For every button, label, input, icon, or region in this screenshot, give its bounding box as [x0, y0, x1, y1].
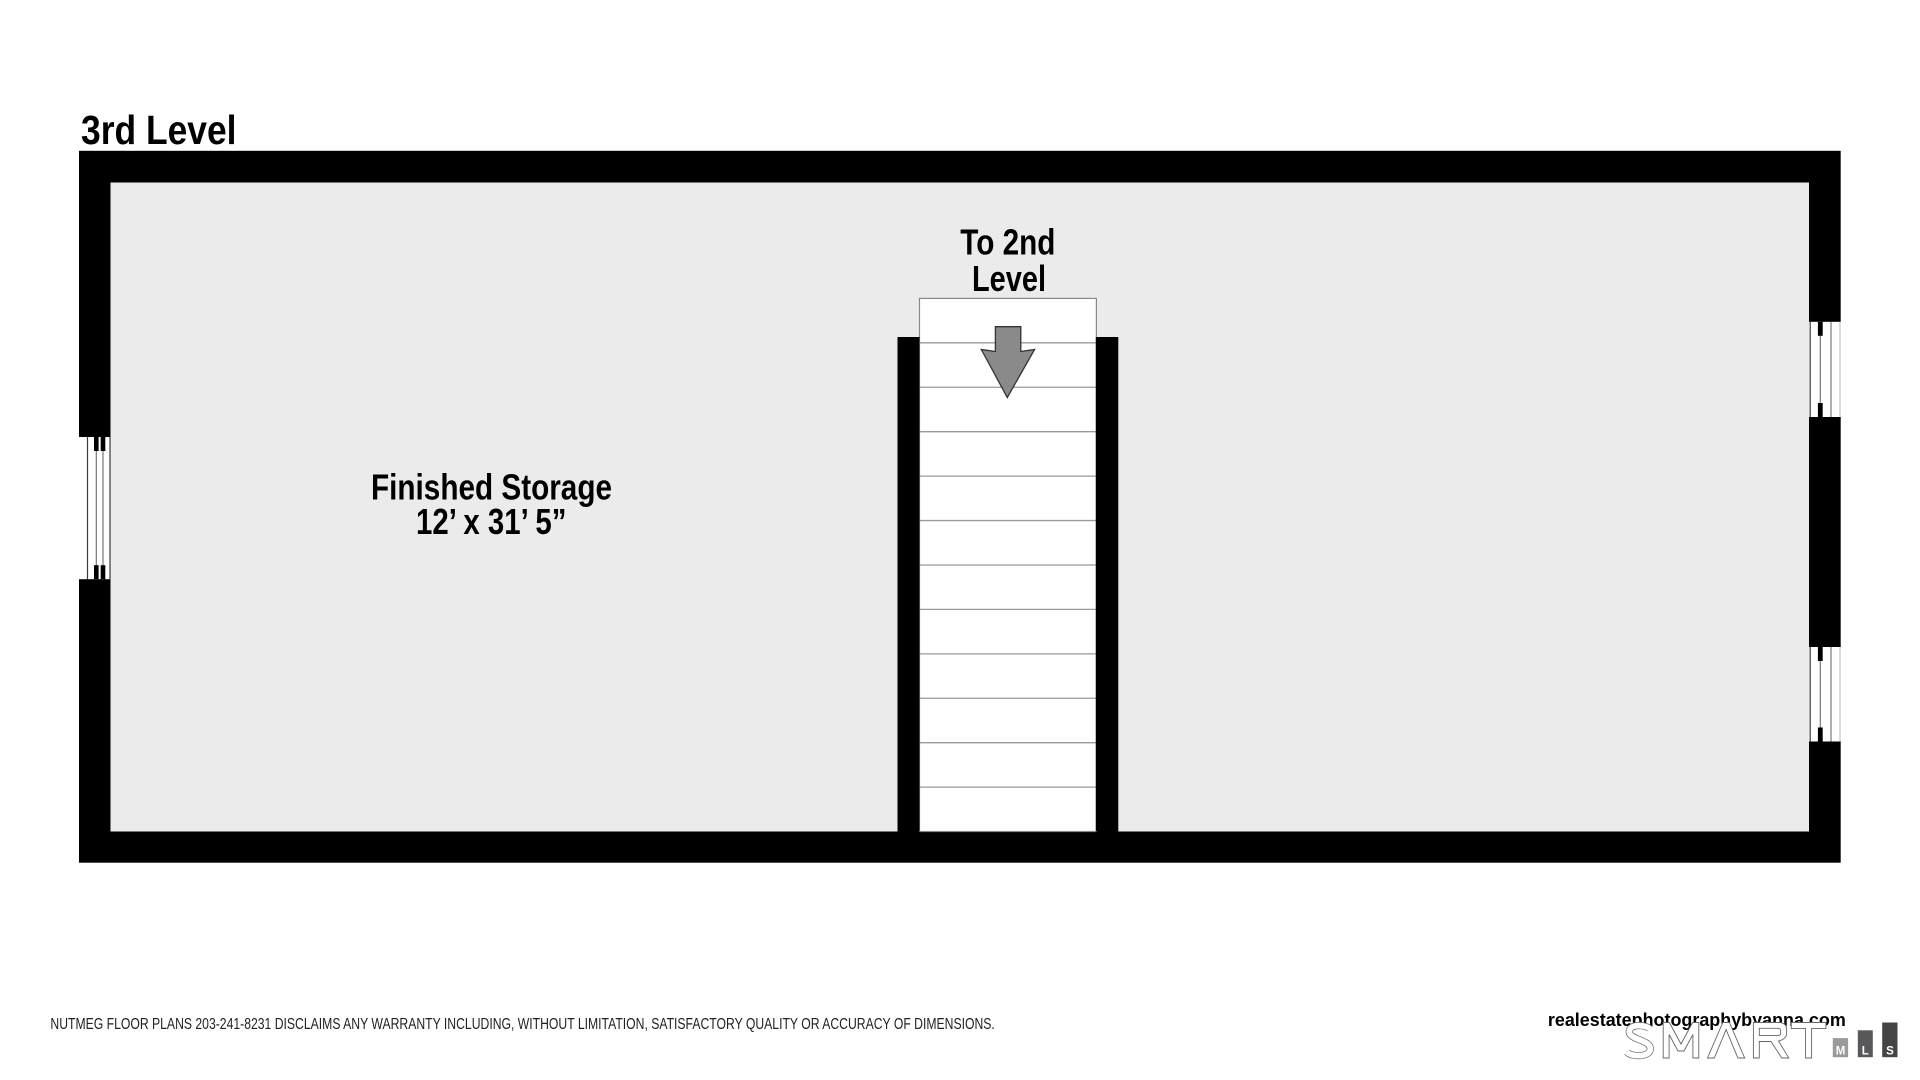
svg-text:12’ x 31’ 5”: 12’ x 31’ 5” — [416, 501, 566, 542]
svg-text:Level: Level — [972, 258, 1046, 299]
svg-text:NUTMEG FLOOR PLANS 203-241-823: NUTMEG FLOOR PLANS 203-241-8231 DISCLAIM… — [50, 1016, 994, 1033]
svg-text:M: M — [1836, 1046, 1846, 1058]
svg-text:S: S — [1886, 1046, 1894, 1058]
svg-text:3rd Level: 3rd Level — [81, 107, 237, 153]
svg-text:L: L — [1862, 1046, 1869, 1058]
svg-text:To 2nd: To 2nd — [960, 222, 1055, 263]
